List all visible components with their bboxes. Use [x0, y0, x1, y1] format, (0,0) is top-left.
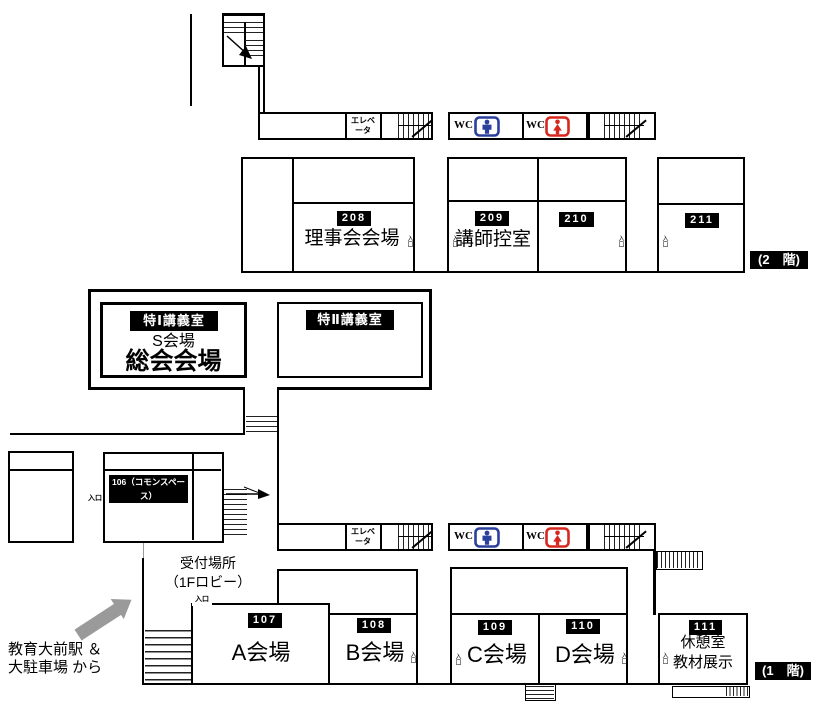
- room-name-107: A会場: [211, 641, 311, 665]
- room-tag-special-2: 特Ⅱ講義室: [306, 310, 394, 330]
- room-divider: [537, 159, 539, 271]
- entrance-marker: 入口: [406, 235, 412, 247]
- wc-women-icon: [545, 116, 570, 137]
- entrance-marker: 入口: [661, 235, 667, 247]
- staircase-2f-top: [222, 13, 265, 67]
- entrance-marker: 入口: [617, 235, 623, 247]
- room-name-209: 講師控室: [452, 230, 534, 251]
- entrance-marker: 入口: [661, 652, 667, 664]
- room-name-111-line1: 休憩室: [665, 635, 741, 652]
- room-block-2f-a: 208 理事会会場 入口: [241, 157, 415, 273]
- room-block-1f-a: 107 A会場: [191, 603, 330, 685]
- corridor-2f-stairs-section: [588, 112, 656, 140]
- wc-men-label: WC: [454, 530, 473, 542]
- stairs-hatch: [526, 686, 554, 699]
- stairs-hatch: [657, 552, 701, 568]
- stairs-hatch: [726, 687, 748, 696]
- access-text-line2: 大駐車場 から: [8, 656, 102, 677]
- wall: [429, 289, 432, 390]
- stairwell-wall: [263, 13, 265, 114]
- elevator-wall: [380, 525, 382, 549]
- room-block-1f-cd: 109 C会場 110 D会場 入口 入口: [450, 567, 628, 685]
- wall: [88, 387, 245, 390]
- elevator-label-line1: エレベ: [351, 527, 375, 536]
- room-name-110: D会場: [545, 643, 625, 667]
- elevator-label-line2: ータ: [355, 537, 371, 546]
- wall-left-top: [190, 14, 192, 106]
- entrance-marker: 入口: [409, 651, 415, 663]
- entrance-steps: [145, 630, 192, 681]
- room-special-1: 特Ⅰ講義室 S会場 総会会場: [100, 302, 247, 378]
- elevator-label: エレベータ: [346, 116, 380, 135]
- stair-direction-arrow-icon: [225, 33, 261, 63]
- wall: [88, 289, 432, 292]
- wall: [88, 289, 91, 390]
- room-divider: [192, 454, 194, 540]
- room-name-111-line2: 教材展示: [663, 655, 743, 672]
- room-left-small: [8, 451, 74, 543]
- room-number-209: 209: [475, 211, 509, 226]
- room-tag-106: 106（コモンスペース）: [109, 475, 188, 503]
- window-strip-divider: [10, 469, 72, 471]
- wc-women-icon: [545, 527, 570, 548]
- room-tag-special-1: 特Ⅰ講義室: [130, 311, 218, 331]
- room-block-2f-c: 211 入口: [657, 157, 745, 273]
- room-number-210: 210: [559, 212, 594, 227]
- corridor-1f-elevator-section: エレベータ: [277, 523, 433, 551]
- corridor-2f-wc-section: WC WC: [448, 112, 588, 140]
- room-name-soukai: 総会会場: [103, 349, 244, 375]
- elevator-wall: [380, 114, 382, 138]
- corridor-2f-elevator-section: エレベータ: [258, 112, 433, 140]
- room-special-2: 特Ⅱ講義室: [277, 302, 423, 378]
- reception-label: 受付場所: [158, 556, 258, 571]
- wc-women-label: WC: [526, 530, 545, 542]
- stairs-east: [656, 551, 703, 570]
- corridor-wall: [243, 390, 245, 434]
- wc-men-icon: [474, 116, 500, 137]
- window-strip-divider: [105, 469, 221, 471]
- room-number-109: 109: [478, 620, 512, 635]
- elevator-label-line1: エレベ: [351, 116, 375, 125]
- room-number-110: 110: [566, 619, 600, 634]
- room-name-109: C会場: [457, 643, 537, 667]
- floor-2-badge: (2 階): [750, 251, 808, 269]
- elevator-label: エレベータ: [346, 527, 380, 546]
- room-number-211: 211: [685, 213, 719, 228]
- entrance-marker: 入口: [620, 652, 626, 664]
- corridor-wall: [277, 390, 279, 523]
- access-arrow: [68, 583, 148, 638]
- room-number-107: 107: [248, 613, 282, 628]
- entrance-marker-107: 入口: [195, 596, 209, 603]
- room-block-2f-b: 209 講師控室 入口 210 入口: [447, 157, 627, 273]
- window-strip-divider: [292, 202, 413, 204]
- stairs-south: [525, 685, 556, 701]
- floor-plan: エレベータ WC WC 208 理事会会場 入口: [0, 0, 817, 708]
- arrow-shaft: [75, 603, 122, 640]
- room-number-108: 108: [357, 618, 391, 633]
- wc-men-label: WC: [454, 119, 473, 131]
- window-strip-divider: [659, 203, 743, 205]
- wc-divider: [522, 525, 524, 549]
- room-name-108: B会場: [334, 641, 416, 665]
- floor-1-badge: (1 階): [755, 662, 811, 680]
- stairs-southeast: [672, 686, 750, 698]
- entrance-marker: 入口: [454, 653, 460, 665]
- room-number-208: 208: [337, 211, 371, 226]
- wc-women-label: WC: [526, 119, 545, 131]
- elevator-label-line2: ータ: [355, 126, 371, 135]
- room-divider: [538, 613, 540, 683]
- room-divider: [292, 159, 294, 271]
- room-106-commons: 106（コモンスペース）: [103, 452, 224, 543]
- stairs-direction-arrow-icon: [224, 484, 272, 502]
- entrance-marker: 入口: [451, 235, 457, 247]
- room-block-1f-111: 111 休憩室 教材展示 入口: [658, 613, 748, 685]
- reception-leader-line: [143, 543, 144, 559]
- wc-men-icon: [474, 527, 500, 548]
- wall: [277, 387, 432, 390]
- stairs-hatch: [246, 416, 277, 433]
- entrance-marker-106: 入口: [88, 495, 102, 502]
- room-name-208: 理事会会場: [295, 229, 409, 250]
- corridor-1f-stairs-section: [588, 523, 656, 551]
- room-number-111: 111: [689, 620, 722, 635]
- stairwell-wall: [258, 67, 260, 114]
- window-strip-divider: [330, 613, 416, 615]
- corridor-1f-wc-section: WC WC: [448, 523, 588, 551]
- reception-sublabel: （1Fロビー）: [153, 575, 263, 590]
- wc-divider: [522, 114, 524, 138]
- wall-mid: [10, 433, 245, 435]
